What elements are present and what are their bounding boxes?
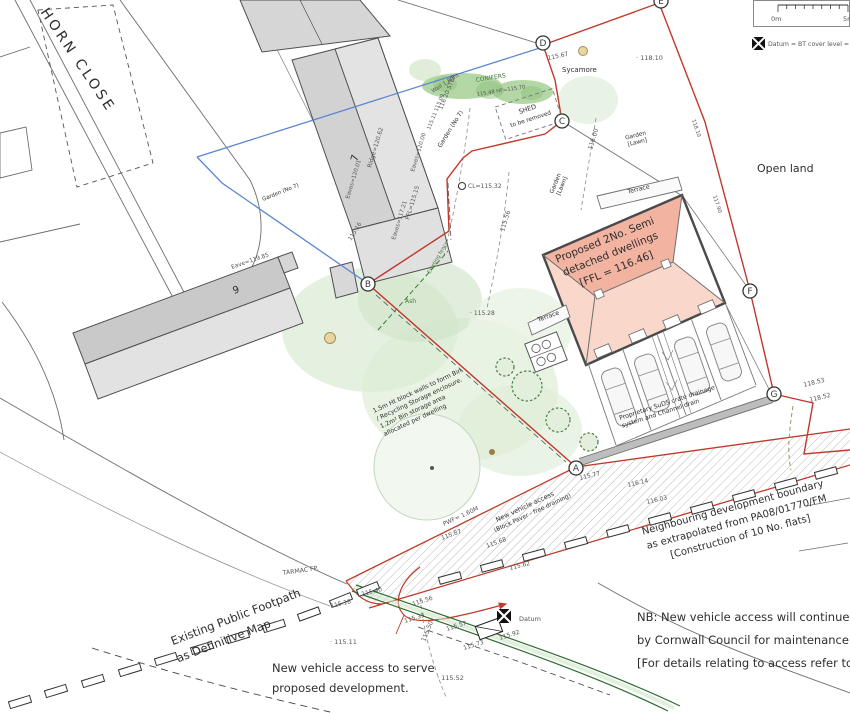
svg-text:B: B (365, 280, 371, 290)
spot-level: 117.90 (711, 195, 722, 214)
label-garden-lawn: Garden [Lawn] (625, 130, 649, 148)
scale-bar: 0m 5m (754, 1, 850, 27)
footpath-label: Existing Public Footpath as Definitive M… (168, 586, 309, 666)
svg-text:Datum = BT cover level =: Datum = BT cover level = (768, 41, 849, 48)
marker-f: F (743, 284, 757, 298)
spot-level: 118.52 (809, 392, 832, 404)
svg-text:C: C (559, 117, 565, 127)
tree-trunk (325, 333, 336, 344)
parked-car (705, 321, 744, 383)
benchmark-icon (752, 37, 765, 50)
svg-text:E: E (658, 0, 664, 7)
manhole-cover (459, 183, 466, 190)
sycamore-trunk (579, 47, 588, 56)
spot-level: 115.67 (547, 51, 569, 62)
svg-text:A: A (573, 464, 580, 474)
spot-level: 115.33 (403, 612, 425, 625)
svg-text:F: F (747, 287, 752, 297)
svg-text:Proprietary SuDS crate drainag: Proprietary SuDS crate drainage (618, 384, 716, 422)
spot-level: 115.73 (462, 639, 484, 652)
contour-label: 115.50 (420, 620, 435, 643)
marker-g: G (767, 387, 781, 401)
cover-level-label: CL=115.32 (468, 183, 502, 190)
marker-b: B (361, 277, 375, 291)
site-plan-drawing: SHED to be removed A B C D (0, 0, 850, 713)
marker-e: E (654, 0, 668, 8)
label-garden-no7: Garden (No 7) (437, 109, 465, 149)
spot-level: · 115.28 (470, 310, 495, 317)
site-datum: Datum (497, 609, 541, 623)
marker-c: C (555, 114, 569, 128)
nb-note: NB: New vehicle access will continue to … (637, 610, 850, 670)
marker-a: A (569, 461, 583, 475)
svg-text:New vehicle access to serve: New vehicle access to serve (272, 661, 435, 675)
svg-text:NB: New vehicle access will co: NB: New vehicle access will continue to … (637, 610, 850, 624)
spot-level: · 115.52 (437, 674, 464, 682)
spot-level: 115.11 115.09 (426, 93, 446, 130)
svg-text:G: G (771, 390, 778, 400)
label-sycamore: Sycamore (562, 66, 597, 74)
spot-level: 115.56 (411, 595, 433, 608)
footpath-dashed-curve (92, 648, 330, 712)
shed-label: SHED (518, 103, 538, 116)
spot-level: · 115.11 (330, 638, 357, 646)
scale-zero: 0m (771, 15, 781, 23)
benchmark-icon (497, 609, 511, 623)
svg-text:by Cornwall Council for mainte: by Cornwall Council for maintenance of t… (637, 633, 850, 647)
contour-label: 115.56 (499, 210, 512, 233)
tarmac-label: TARMAC FP. (281, 565, 319, 577)
road-name: HORN CLOSE (37, 5, 119, 115)
scale-five: 5m (843, 15, 850, 23)
spot-level: · 118.10 (636, 54, 663, 62)
svg-text:proposed development.: proposed development. (272, 681, 409, 695)
datum-note: Datum = BT cover level = (752, 37, 849, 50)
svg-text:D: D (540, 39, 547, 49)
label-ash: Ash (405, 298, 416, 305)
label-open-land: Open land (757, 162, 814, 175)
marker-d: D (536, 36, 550, 50)
spot-level: 118.10 (690, 119, 701, 138)
label-garden-no7: Garden (No 7) (262, 183, 300, 203)
tree-trunk-small (489, 449, 495, 455)
datum-label: Datum (519, 615, 541, 623)
serve-note: New vehicle access to serve proposed dev… (272, 661, 435, 695)
spot-level: 118.53 (803, 377, 826, 389)
label-garden-lawn: Garden [Lawn] (549, 172, 569, 197)
contour-label: 116.00 (587, 128, 600, 151)
shed-sublabel: to be removed (510, 110, 553, 129)
svg-text:[For details relating to acces: [For details relating to access refer to… (637, 656, 850, 670)
